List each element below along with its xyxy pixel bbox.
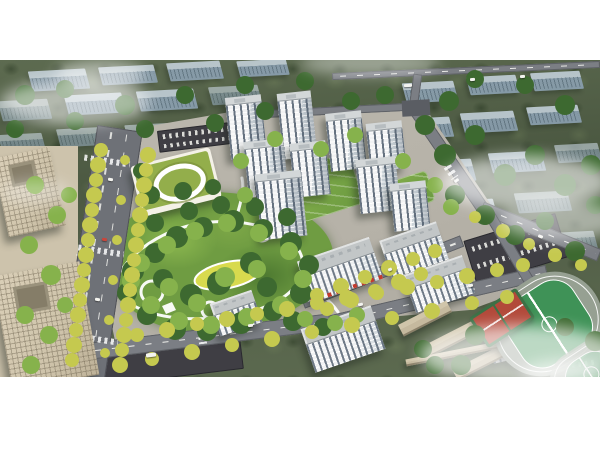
junction-pad <box>402 99 431 116</box>
aerial-render <box>0 60 600 377</box>
mist-cloud <box>0 180 70 204</box>
vehicle <box>470 78 475 81</box>
mist-cloud <box>55 60 145 90</box>
vehicle <box>108 178 113 182</box>
residential-tower-9 <box>255 170 308 240</box>
vehicle <box>248 324 253 328</box>
playground-yellow <box>192 255 264 295</box>
canvas <box>0 0 600 450</box>
street-trees-yellow <box>0 60 10 70</box>
bus <box>404 84 412 87</box>
vehicle <box>95 298 100 302</box>
vehicle <box>520 75 525 78</box>
vehicle <box>102 238 107 242</box>
